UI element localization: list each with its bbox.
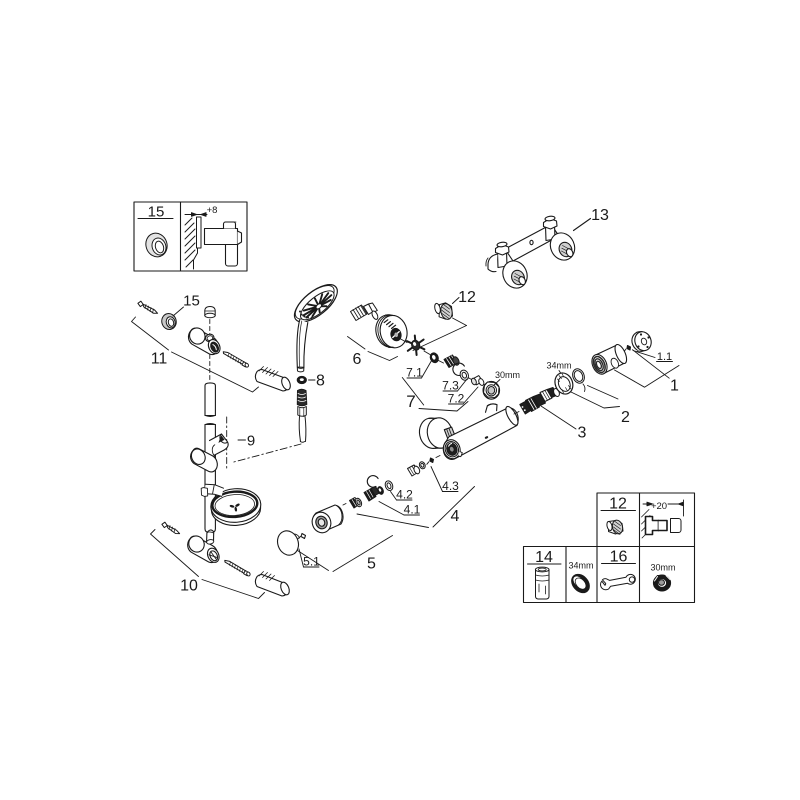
- svg-text:2: 2: [621, 409, 630, 426]
- svg-text:5.1: 5.1: [303, 555, 320, 569]
- svg-text:5: 5: [367, 556, 376, 573]
- svg-text:3: 3: [578, 425, 587, 442]
- svg-text:4: 4: [451, 508, 460, 525]
- svg-text:6: 6: [353, 351, 362, 368]
- svg-text:4.3: 4.3: [442, 479, 459, 493]
- svg-text:11: 11: [151, 351, 168, 368]
- svg-text:12: 12: [609, 496, 627, 513]
- svg-text:34mm: 34mm: [568, 561, 593, 571]
- svg-text:14: 14: [535, 549, 553, 566]
- svg-text:4.1: 4.1: [404, 503, 421, 517]
- svg-text:15: 15: [183, 293, 200, 310]
- svg-text:7: 7: [406, 392, 415, 411]
- svg-text:13: 13: [591, 207, 609, 224]
- svg-text:+8: +8: [207, 205, 218, 216]
- svg-text:12: 12: [458, 289, 476, 306]
- svg-text:10: 10: [180, 578, 198, 595]
- svg-text:4.2: 4.2: [396, 488, 413, 502]
- svg-text:34mm: 34mm: [546, 361, 571, 371]
- svg-text:7.1: 7.1: [406, 366, 423, 380]
- svg-text:16: 16: [610, 549, 628, 566]
- svg-text:30mm: 30mm: [650, 563, 675, 573]
- svg-text:7.2: 7.2: [448, 392, 465, 406]
- svg-text:9: 9: [247, 433, 255, 450]
- svg-text:30mm: 30mm: [495, 370, 520, 380]
- svg-text:8: 8: [316, 373, 325, 390]
- svg-text:7.3: 7.3: [442, 379, 459, 393]
- svg-text:1: 1: [670, 378, 679, 395]
- svg-text:+20: +20: [651, 501, 667, 512]
